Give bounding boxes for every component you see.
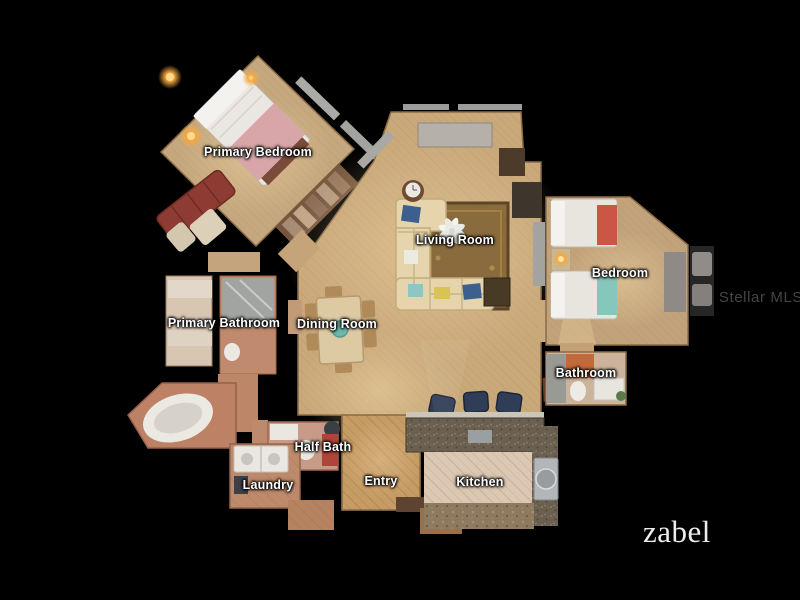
sink-counter <box>270 424 298 440</box>
floorplan-graphic <box>0 0 800 600</box>
clock-table <box>402 180 424 202</box>
shower-glass <box>546 354 566 403</box>
media-console <box>512 182 542 218</box>
vanity-counter <box>168 280 212 298</box>
soaking-tub-area <box>128 383 236 451</box>
kitchen-counter <box>424 503 534 529</box>
shower-curtain <box>566 354 594 378</box>
pillow-blue <box>462 283 481 300</box>
pillow-blue <box>401 205 421 223</box>
stellar-mls-watermark: Stellar MLS <box>719 289 800 306</box>
pillow-teal <box>408 284 423 297</box>
twin-bed-teal <box>551 271 617 319</box>
kitchen-sink <box>468 430 492 443</box>
plant <box>616 391 626 401</box>
window-sill <box>403 104 449 110</box>
lanai <box>690 246 714 316</box>
window-sill <box>533 222 545 286</box>
patio-chair <box>692 252 712 276</box>
toilet <box>570 381 586 401</box>
cabinet <box>499 148 525 176</box>
dresser <box>664 252 686 312</box>
twin-bed-coral <box>551 199 617 247</box>
bathroom-room <box>546 343 626 405</box>
entry-door <box>396 497 424 512</box>
pillow-white <box>404 250 418 264</box>
hamper <box>234 476 248 494</box>
patio-chair <box>692 284 712 306</box>
chest <box>484 278 510 306</box>
lamp-glow <box>242 69 260 87</box>
washer-dryer <box>234 446 288 472</box>
zabel-logo: zabel <box>643 514 711 550</box>
floorplan-image: Primary BedroomLiving RoomBedroomPrimary… <box>0 0 800 600</box>
bedroom-room <box>533 197 688 345</box>
stove <box>534 458 558 500</box>
window-sill <box>458 104 522 110</box>
rug-gray <box>418 123 492 147</box>
vanity-counter <box>168 330 212 346</box>
pillow-yellow <box>434 287 450 299</box>
toilet <box>224 343 240 361</box>
red-accent-wall <box>322 434 338 466</box>
